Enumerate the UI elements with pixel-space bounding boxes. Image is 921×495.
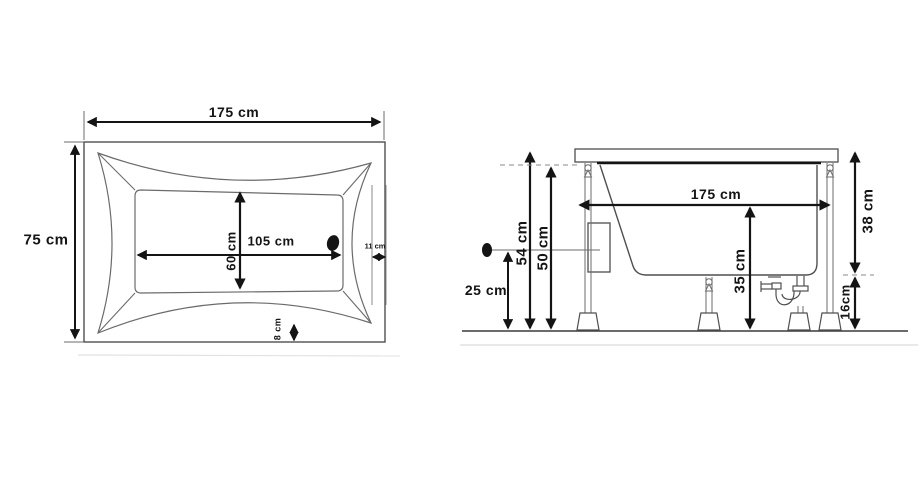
- plan-rim-right-label: 11 cm: [365, 242, 386, 250]
- plan-depth-label: 75 cm: [23, 233, 68, 248]
- drain-leg: [788, 306, 810, 330]
- side-body-height-label: 38 cm: [861, 188, 876, 233]
- side-inner-height-label: 35 cm: [733, 248, 748, 293]
- middle-leg: [698, 277, 720, 330]
- drain-hole-icon: [325, 234, 341, 252]
- leg-foot: [788, 313, 810, 330]
- drain-trap-icon: [761, 276, 808, 305]
- side-overall-height-label: 54 cm: [515, 220, 530, 265]
- plan-inner-length-label: 105 cm: [247, 235, 294, 248]
- drain-outlet-dot: [482, 243, 492, 257]
- plan-inner-width-label: 60 cm: [225, 231, 238, 270]
- leg-foot: [577, 313, 599, 330]
- plan-width-label: 175 cm: [209, 105, 259, 119]
- side-clearance-label: 16cm: [839, 284, 852, 319]
- side-shell-height-label: 50 cm: [536, 225, 551, 270]
- tub-body-profile: [600, 165, 817, 275]
- tub-rim-profile: [575, 149, 838, 162]
- technical-drawing-page: 175 cm 75 cm 105 cm 60 cm 11 cm 8 cm 25 …: [0, 0, 921, 495]
- drawing-canvas: [0, 0, 921, 495]
- side-length-label: 175 cm: [691, 187, 741, 201]
- side-drain-outlet-height-label: 25 cm: [465, 283, 507, 297]
- scan-artifact-line: [78, 355, 400, 356]
- plan-rim-bottom-label: 8 cm: [274, 318, 283, 341]
- leg-foot: [698, 313, 720, 330]
